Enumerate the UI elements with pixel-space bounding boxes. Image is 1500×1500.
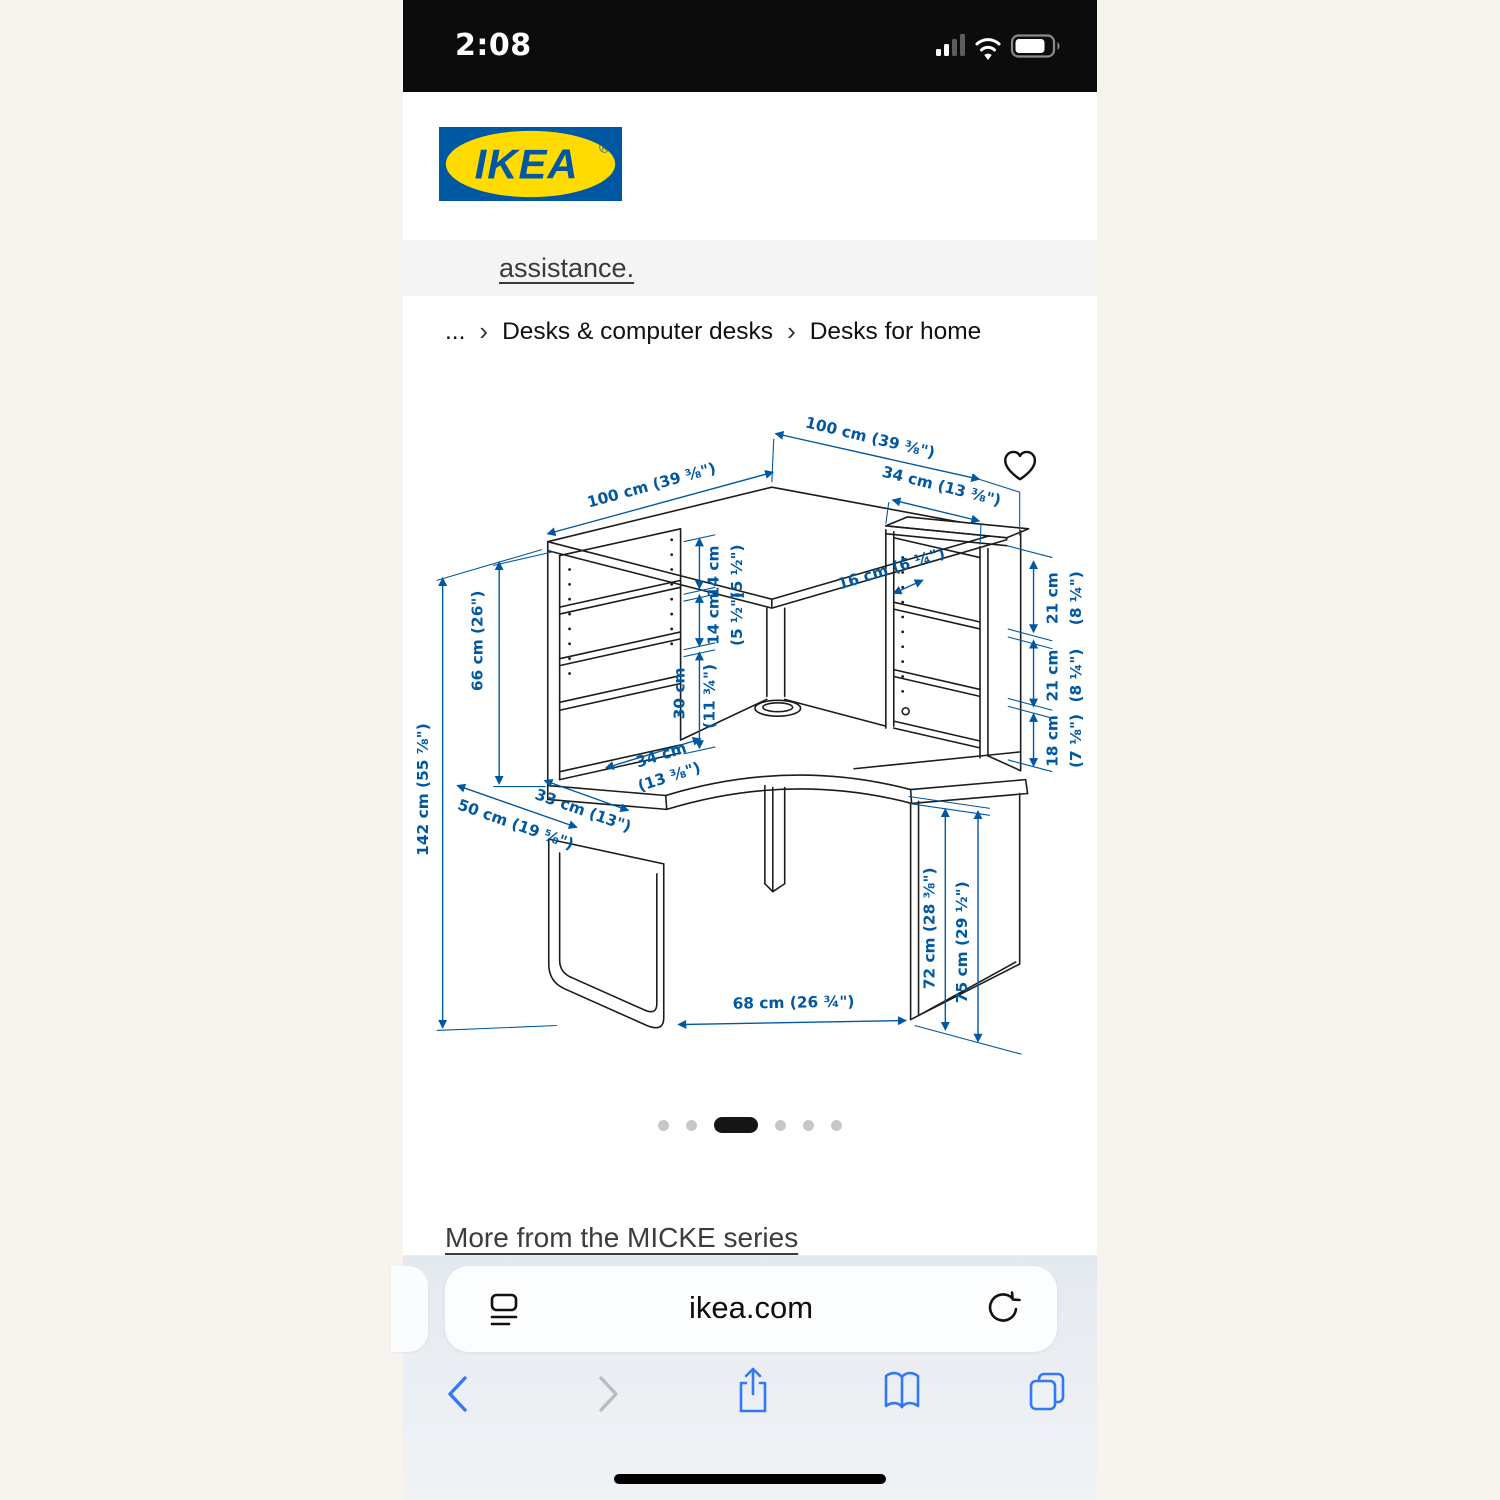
more-from-series-link[interactable]: More from the MICKE series: [445, 1222, 798, 1254]
dim-label-open-h-in: (11 ¾"): [700, 664, 718, 729]
dim-label-leg-height: 75 cm (29 ½"): [953, 881, 971, 1003]
assistance-link[interactable]: assistance.: [499, 253, 634, 284]
clock: 2:08: [455, 28, 532, 63]
wishlist-heart-icon[interactable]: [1005, 452, 1035, 479]
breadcrumb: ... › Desks & computer desks › Desks for…: [445, 316, 981, 347]
dim-label-shelf-h1-cm: 14 cm: [704, 546, 722, 598]
site-header: IKEA ®: [403, 92, 1097, 240]
carousel-dot[interactable]: [658, 1120, 669, 1131]
dim-label-right-h2-in: (8 ¼"): [1067, 649, 1085, 703]
breadcrumb-item-desks-home[interactable]: Desks for home: [810, 318, 982, 346]
breadcrumb-separator: ›: [787, 316, 796, 347]
dim-label-width-left: 100 cm (39 ⅜"): [585, 459, 718, 511]
dim-label-open-h-cm: 30 cm: [671, 667, 689, 719]
dim-label-right-h3-cm: 18 cm: [1043, 715, 1061, 767]
registered-mark: ®: [599, 140, 610, 156]
forward-button[interactable]: [589, 1372, 625, 1421]
signal-icon: [936, 34, 965, 56]
dim-label-right-h1-in: (8 ¼"): [1067, 571, 1085, 625]
dim-label-top-unit-width: 34 cm (13 ⅜"): [880, 463, 1003, 510]
carousel-dots: [403, 1110, 1097, 1140]
refresh-icon[interactable]: [983, 1290, 1021, 1333]
status-bar: 2:08: [403, 0, 1097, 92]
breadcrumb-item-desks[interactable]: Desks & computer desks: [502, 318, 773, 346]
carousel-dot[interactable]: [803, 1120, 814, 1131]
carousel-dot[interactable]: [831, 1120, 842, 1131]
carousel-dot[interactable]: [714, 1117, 758, 1133]
home-indicator[interactable]: [614, 1474, 886, 1484]
product-dimension-image[interactable]: 100 cm (39 ⅜") 100 cm (39 ⅜") 34 cm (13 …: [403, 388, 1097, 1088]
dim-label-shelf-h1-in: (5 ½"): [728, 544, 746, 598]
share-icon[interactable]: [733, 1366, 773, 1423]
tabs-icon[interactable]: [1025, 1368, 1069, 1419]
dim-label-shelf-h2-in: (5 ½"): [728, 592, 746, 646]
dim-label-knee-width: 68 cm (26 ¾"): [732, 993, 854, 1013]
wifi-icon: [977, 40, 999, 58]
adjacent-tab-edge[interactable]: [391, 1266, 428, 1352]
status-icons: [936, 31, 1071, 70]
logo-wordmark: IKEA: [475, 141, 579, 188]
dim-label-right-h1-cm: 21 cm: [1043, 572, 1061, 624]
dim-label-total-height: 142 cm (55 ⅞"): [414, 723, 432, 856]
carousel-dot[interactable]: [686, 1120, 697, 1131]
ikea-logo[interactable]: IKEA ®: [437, 127, 624, 201]
url-bar[interactable]: ikea.com: [445, 1266, 1057, 1352]
dim-label-right-h3-in: (7 ⅛"): [1067, 714, 1085, 768]
dim-label-right-h2-cm: 21 cm: [1043, 650, 1061, 702]
breadcrumb-separator: ›: [479, 316, 488, 347]
carousel-dot[interactable]: [775, 1120, 786, 1131]
bookmarks-icon[interactable]: [881, 1368, 923, 1419]
dim-label-hutch-height: 66 cm (26"): [468, 591, 486, 692]
safari-toolbar: ikea.com: [403, 1256, 1097, 1500]
breadcrumb-ellipsis[interactable]: ...: [445, 318, 465, 346]
phone-screen: 2:08: [403, 0, 1097, 1500]
url-text: ikea.com: [445, 1290, 1057, 1326]
notice-banner: assistance.: [403, 240, 1097, 296]
back-button[interactable]: [441, 1372, 477, 1421]
battery-icon: [1012, 36, 1060, 57]
dim-label-shelf-h2-cm: 14 cm: [704, 593, 722, 645]
dim-label-desk-height: 72 cm (28 ⅜"): [920, 867, 938, 989]
